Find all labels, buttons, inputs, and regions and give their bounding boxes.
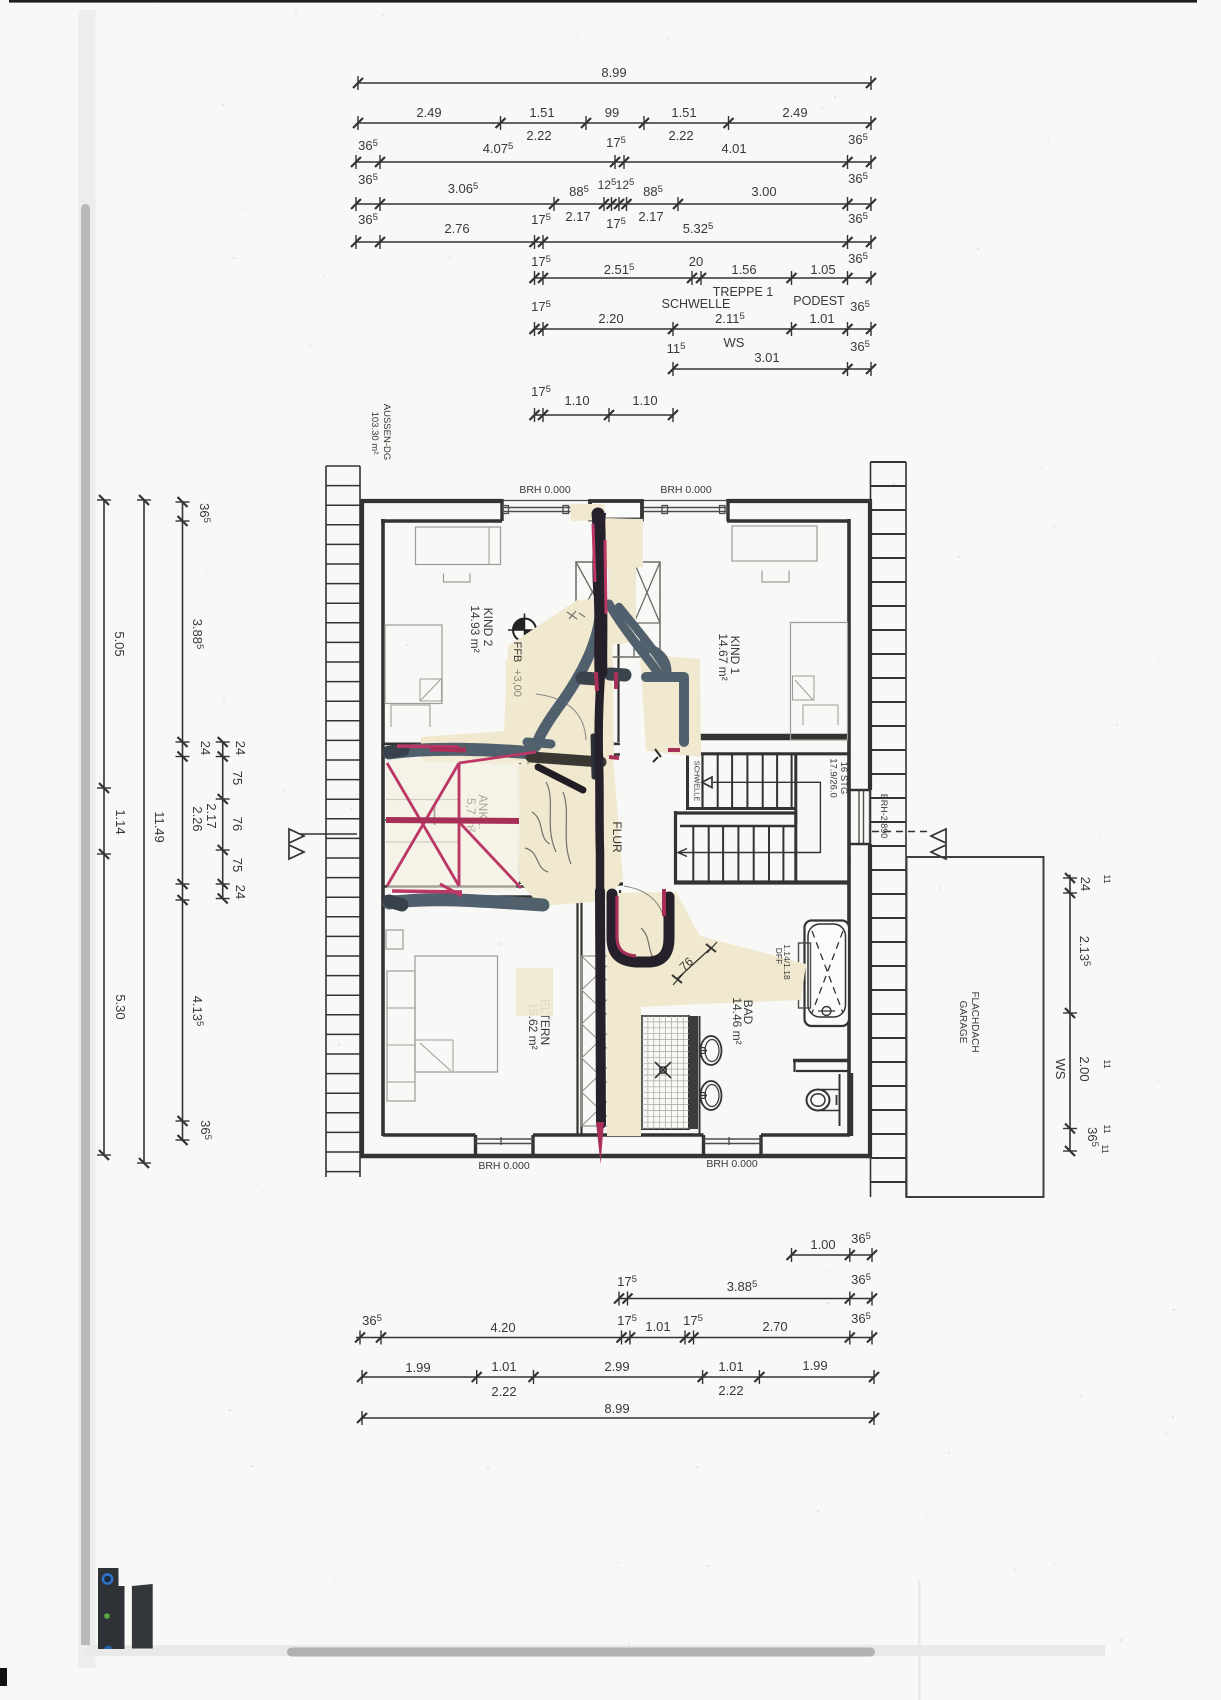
- svg-text:1.01: 1.01: [718, 1359, 743, 1374]
- svg-text:11.49: 11.49: [152, 811, 167, 843]
- svg-text:24: 24: [198, 741, 213, 755]
- svg-text:99: 99: [605, 105, 619, 120]
- svg-text:5.05: 5.05: [112, 631, 127, 656]
- svg-text:WS: WS: [724, 335, 745, 350]
- svg-text:11: 11: [1102, 1124, 1112, 1133]
- svg-text:BRH 0.000: BRH 0.000: [478, 1160, 530, 1172]
- svg-text:2.22: 2.22: [668, 128, 693, 143]
- svg-text:1.00: 1.00: [810, 1237, 835, 1252]
- svg-text:2.26: 2.26: [190, 806, 205, 831]
- svg-text:14.46 m²: 14.46 m²: [730, 997, 744, 1044]
- svg-text:2.00: 2.00: [1077, 1056, 1092, 1081]
- svg-text:SCHWELLE: SCHWELLE: [693, 761, 702, 802]
- svg-text:2.17: 2.17: [638, 209, 663, 224]
- svg-text:24: 24: [233, 885, 248, 899]
- svg-text:24: 24: [233, 741, 248, 755]
- svg-text:AUSSEN-DG: AUSSEN-DG: [381, 404, 392, 460]
- svg-text:2.49: 2.49: [416, 105, 441, 120]
- svg-text:75: 75: [230, 771, 245, 785]
- svg-text:2.17: 2.17: [204, 803, 219, 828]
- svg-text:1.51: 1.51: [529, 105, 554, 120]
- svg-text:1.99: 1.99: [405, 1360, 430, 1375]
- svg-text:FFB: FFB: [511, 642, 523, 663]
- svg-text:4.01: 4.01: [721, 141, 746, 156]
- svg-text:8.99: 8.99: [601, 65, 626, 80]
- svg-text:PODEST: PODEST: [793, 294, 845, 308]
- svg-text:1.99: 1.99: [802, 1358, 827, 1373]
- svg-text:1.14: 1.14: [113, 809, 128, 834]
- svg-text:1.51: 1.51: [671, 105, 696, 120]
- svg-text:2.22: 2.22: [718, 1383, 743, 1398]
- svg-text:2.99: 2.99: [604, 1359, 629, 1374]
- svg-text:11: 11: [1102, 1059, 1112, 1068]
- svg-text:5.30: 5.30: [113, 994, 128, 1019]
- svg-text:4.20: 4.20: [490, 1320, 515, 1335]
- svg-text:2.17: 2.17: [565, 209, 590, 224]
- svg-text:KIND 2: KIND 2: [481, 608, 495, 647]
- svg-text:2.70: 2.70: [762, 1319, 787, 1334]
- svg-text:20: 20: [689, 254, 703, 269]
- svg-text:1.56: 1.56: [731, 262, 756, 277]
- svg-text:1.01: 1.01: [491, 1359, 516, 1374]
- svg-text:14.67 m²: 14.67 m²: [716, 633, 730, 680]
- svg-text:1.01: 1.01: [809, 311, 834, 326]
- svg-text:BRH 0.000: BRH 0.000: [706, 1158, 758, 1170]
- svg-text:1.01: 1.01: [645, 1319, 670, 1334]
- svg-text:FLACHDACH: FLACHDACH: [969, 991, 980, 1052]
- svg-text:3.01: 3.01: [754, 350, 779, 365]
- svg-text:1.14/1.18: 1.14/1.18: [782, 944, 792, 980]
- svg-text:11: 11: [1102, 874, 1112, 883]
- svg-text:17.9/26.0: 17.9/26.0: [828, 758, 839, 798]
- svg-text:8.99: 8.99: [604, 1401, 629, 1416]
- svg-text:103.30 m²: 103.30 m²: [369, 412, 380, 455]
- svg-text:SCHWELLE: SCHWELLE: [662, 297, 731, 311]
- svg-text:16 STG: 16 STG: [838, 762, 849, 795]
- svg-text:2.76: 2.76: [444, 221, 469, 236]
- svg-text:1.10: 1.10: [632, 393, 657, 408]
- svg-text:BRH 0.000: BRH 0.000: [660, 484, 712, 496]
- svg-text:3.00: 3.00: [751, 184, 776, 199]
- svg-text:14.93 m²: 14.93 m²: [468, 605, 482, 652]
- svg-text:75: 75: [230, 858, 245, 872]
- svg-text:+3,00: +3,00: [511, 669, 523, 697]
- svg-text:76: 76: [230, 817, 245, 831]
- svg-text:BRH 0.000: BRH 0.000: [519, 484, 571, 496]
- svg-text:2.22: 2.22: [526, 128, 551, 143]
- svg-text:2.49: 2.49: [782, 105, 807, 120]
- svg-text:2.22: 2.22: [491, 1384, 516, 1399]
- svg-text:1.10: 1.10: [564, 393, 589, 408]
- svg-text:2.20: 2.20: [598, 311, 623, 326]
- svg-text:1.05: 1.05: [810, 262, 835, 277]
- svg-text:GARAGE: GARAGE: [957, 1001, 968, 1044]
- svg-text:24: 24: [1078, 877, 1093, 891]
- svg-text:FLUR: FLUR: [610, 821, 624, 853]
- svg-text:11: 11: [1100, 1144, 1110, 1153]
- svg-text:WS: WS: [1053, 1059, 1068, 1080]
- svg-text:TREPPE 1: TREPPE 1: [713, 285, 773, 299]
